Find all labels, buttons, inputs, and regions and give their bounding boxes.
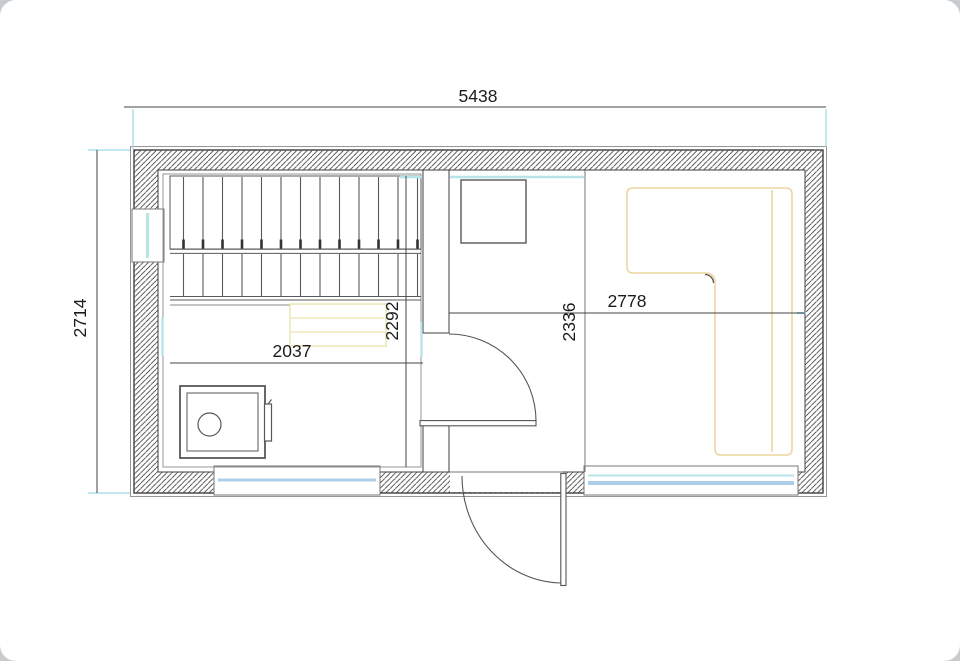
upper-bench-slats (184, 177, 418, 249)
dim-overall-depth: 2714 (70, 298, 90, 337)
exterior-walls (131, 147, 827, 497)
sauna-heater (180, 386, 272, 458)
table (461, 180, 526, 243)
interior-door (420, 334, 536, 426)
window-left-wall (132, 209, 164, 262)
dim-lounge-depth: 2336 (559, 303, 579, 342)
window-lounge-bottom (584, 466, 798, 495)
dim-sauna-width: 2037 (273, 341, 312, 361)
door-swing-arc (449, 334, 536, 421)
floor-plan-drawing: 5438 2714 2037 2292 2336 2778 (0, 0, 960, 661)
dim-lounge-width: 2778 (608, 291, 647, 311)
floor-plan-canvas: 5438 2714 2037 2292 2336 2778 (0, 0, 960, 661)
step-bench (290, 304, 386, 346)
partition-wall (423, 170, 449, 472)
glass-accents (163, 177, 585, 357)
window-sauna-bottom (214, 466, 380, 495)
door-leaf (420, 421, 536, 426)
heater-handle (265, 404, 272, 441)
door-leaf (561, 474, 566, 586)
entrance-opening (450, 471, 563, 492)
corner-sofa (627, 188, 792, 455)
heater-chimney (198, 413, 221, 436)
sauna-benches (170, 176, 421, 300)
slat-ticks (182, 240, 419, 249)
dim-overall-width: 5438 (459, 86, 498, 106)
lower-bench-slats (184, 254, 418, 296)
dim-sauna-depth: 2292 (382, 302, 402, 341)
